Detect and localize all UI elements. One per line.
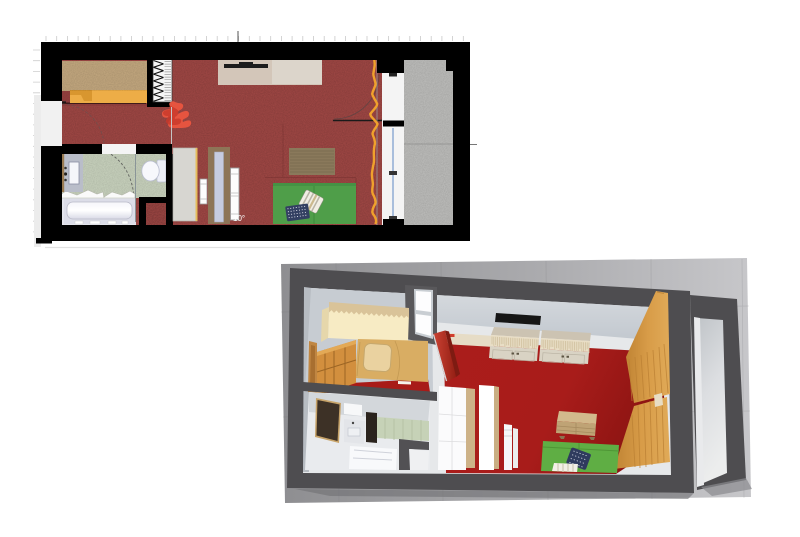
svg-text:10°: 10° (233, 214, 245, 223)
